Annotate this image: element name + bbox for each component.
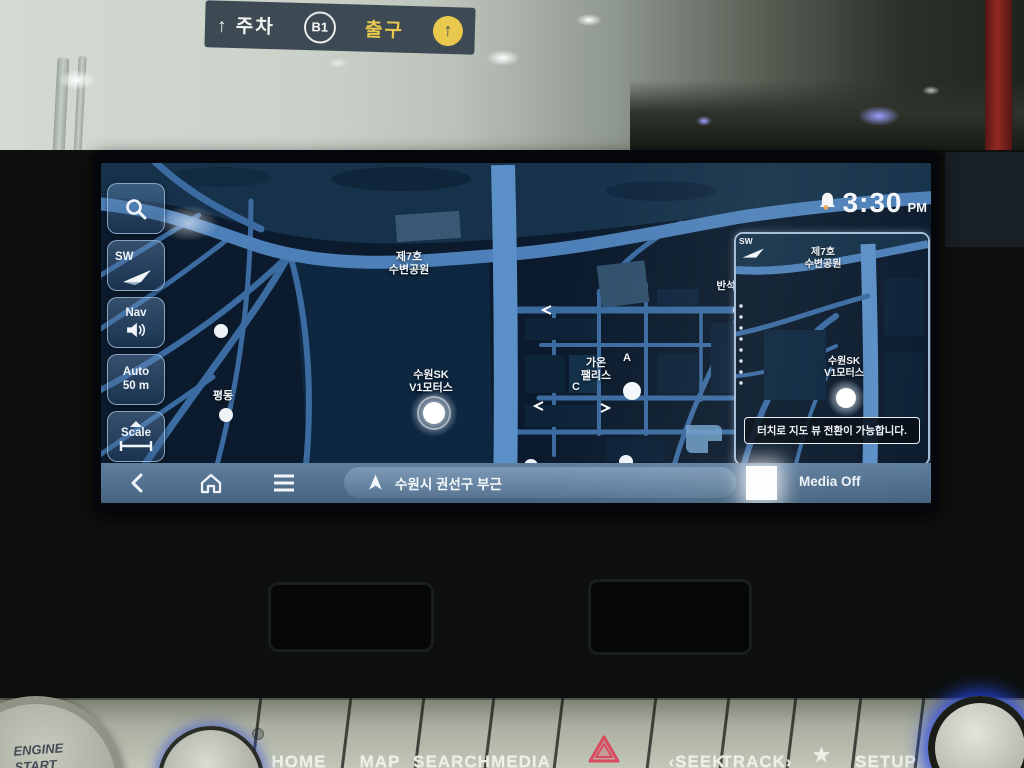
setup-key[interactable]: SETUP — [855, 752, 917, 768]
map-key[interactable]: MAP — [360, 752, 401, 768]
hazard-key[interactable] — [588, 734, 620, 764]
home-icon[interactable] — [199, 472, 223, 494]
bottom-bar: 수원시 권선구 부근 Media Off — [101, 463, 931, 503]
map-label-poi-main: 수원SK V1모터스 — [381, 369, 481, 395]
favorite-star-key[interactable]: ★ — [813, 744, 831, 767]
home-key[interactable]: HOME — [272, 752, 327, 768]
engine-start-label: ENGINE START — [13, 740, 65, 768]
ceiling-lamp — [922, 86, 940, 95]
scale-button[interactable]: Scale — [107, 411, 165, 462]
search-key[interactable]: SEARCH — [413, 752, 491, 768]
ceiling-lamp — [58, 70, 96, 90]
sign-exit-label: 출구 — [365, 15, 405, 43]
minimap-poi-label: 수원SK V1모터스 — [794, 356, 894, 380]
purple-light — [858, 106, 900, 126]
auto-scale-label: Auto 50 m — [123, 366, 149, 394]
clock-period: PM — [908, 200, 928, 215]
navigation-display[interactable]: 제7호 수변공원 수원SK V1모터스 평동 가온 팰리스 A C 반석중 SW — [101, 163, 931, 503]
ceiling-lamp — [328, 58, 348, 68]
sign-level-badge: B1 — [303, 10, 336, 43]
ceiling-beam — [630, 80, 1024, 152]
nav-volume-label: Nav — [125, 307, 146, 321]
compass-arrow-icon — [121, 267, 155, 285]
red-pipe — [985, 0, 1012, 150]
clock-time: 3:30 — [842, 187, 902, 219]
exit-arrow-icon: ↑ — [433, 15, 464, 46]
air-vent — [268, 582, 434, 652]
media-status-text[interactable]: Media Off — [799, 474, 861, 489]
back-icon[interactable] — [129, 473, 145, 493]
status-clock: 3:30 PM — [818, 187, 927, 219]
map-label-block-c: C — [572, 381, 580, 394]
menu-icon[interactable] — [273, 474, 295, 492]
ceiling-lamp — [576, 14, 602, 26]
minimap-panel[interactable]: SW 제7호 수변공원 수원SK V1모터스 터치로 지도 뷰 전환이 가능합니… — [734, 232, 930, 466]
compass-button[interactable]: SW — [107, 240, 165, 291]
map-label-block-a: A — [623, 352, 631, 365]
map-label-park: 제7호 수변공원 — [359, 251, 459, 277]
parking-sign: ↑ 주차 B1 출구 ↑ — [204, 0, 475, 55]
nav-volume-button[interactable]: Nav — [107, 297, 165, 348]
air-vent — [588, 579, 752, 655]
search-icon — [123, 196, 149, 222]
gps-arrow-icon — [366, 473, 385, 492]
media-thumbnail[interactable] — [746, 466, 777, 500]
windshield-reflection — [945, 152, 1024, 247]
scale-ruler-icon — [119, 440, 153, 452]
blue-light — [696, 116, 712, 126]
media-key[interactable]: MEDIA — [491, 752, 551, 768]
minimap-compass-arrow-icon — [741, 246, 767, 260]
infotainment-screen: 제7호 수변공원 수원SK V1모터스 평동 가온 팰리스 A C 반석중 SW — [92, 150, 940, 512]
scale-label: Scale — [121, 427, 151, 441]
car-dashboard-photo: ↑ 주차 B1 출구 ↑ — [0, 0, 1024, 768]
search-button[interactable] — [107, 183, 165, 234]
minimap-park-label: 제7호 수변공원 — [773, 247, 873, 271]
auto-scale-button[interactable]: Auto 50 m — [107, 354, 165, 405]
ceiling-lamp — [486, 50, 520, 66]
bell-icon — [818, 191, 837, 212]
track-key[interactable]: TRACK› — [721, 752, 792, 768]
up-arrow-icon: ↑ — [217, 16, 229, 37]
speaker-icon — [125, 322, 147, 338]
map-tool-column: SW Nav Auto 50 m — [107, 183, 165, 468]
compass-direction-label: SW — [115, 251, 134, 265]
current-location-text: 수원시 권선구 부근 — [395, 473, 502, 493]
map-label-town: 평동 — [193, 390, 253, 403]
current-location-pill[interactable]: 수원시 권선구 부근 — [344, 467, 736, 498]
minimap-compass-label: SW — [739, 236, 753, 246]
sign-parking-label: ↑ 주차 — [217, 11, 275, 40]
minimap-toast-message: 터치로 지도 뷰 전환이 가능합니다. — [744, 417, 920, 444]
seek-key[interactable]: ‹SEEK — [669, 752, 726, 768]
